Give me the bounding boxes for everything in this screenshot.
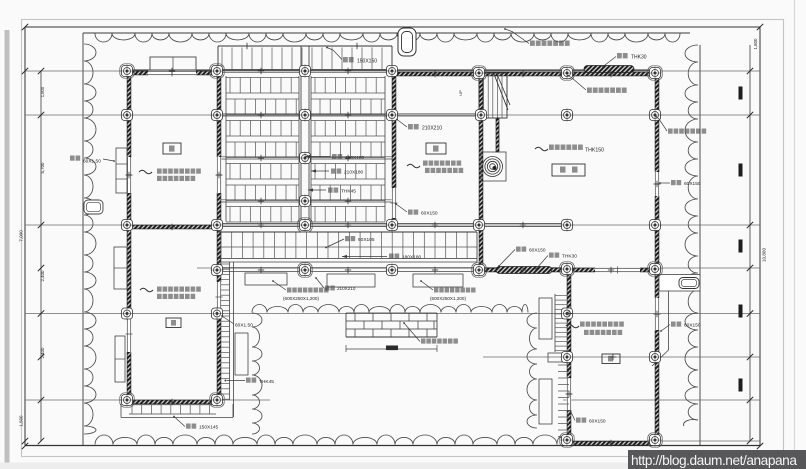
svg-text:180X180: 180X180 bbox=[345, 155, 365, 161]
svg-text:60X105: 60X105 bbox=[358, 237, 375, 243]
svg-text:http://blog.daum.net/anapana: http://blog.daum.net/anapana bbox=[631, 453, 797, 468]
svg-text:(600X250X1,200): (600X250X1,200) bbox=[430, 296, 466, 301]
svg-text:210X210: 210X210 bbox=[337, 286, 356, 291]
svg-text:60X150: 60X150 bbox=[589, 419, 606, 425]
svg-text:(600X250X1,200): (600X250X1,200) bbox=[283, 296, 319, 301]
svg-text:10,800: 10,800 bbox=[762, 248, 767, 262]
svg-text:60X1.50: 60X1.50 bbox=[83, 159, 101, 165]
svg-text:60X1.50: 60X1.50 bbox=[235, 323, 253, 329]
svg-text:THK45: THK45 bbox=[259, 379, 274, 385]
svg-text:2,400: 2,400 bbox=[40, 270, 45, 282]
svg-text:1,500: 1,500 bbox=[19, 415, 24, 427]
svg-text:210X210: 210X210 bbox=[422, 126, 442, 132]
svg-text:1,800: 1,800 bbox=[40, 86, 45, 97]
svg-text:210X180: 210X180 bbox=[344, 170, 364, 176]
svg-text:180X180: 180X180 bbox=[402, 255, 422, 261]
svg-text:THK45: THK45 bbox=[341, 189, 356, 195]
svg-text:THK150: THK150 bbox=[585, 148, 604, 154]
svg-text:2,400: 2,400 bbox=[40, 347, 45, 359]
svg-text:THK30: THK30 bbox=[562, 254, 577, 260]
svg-text:THK30: THK30 bbox=[631, 55, 647, 61]
svg-text:7,000: 7,000 bbox=[19, 230, 24, 242]
svg-text:1,800: 1,800 bbox=[753, 38, 758, 50]
svg-text:60X150: 60X150 bbox=[684, 181, 701, 187]
svg-text:60X150: 60X150 bbox=[529, 248, 546, 254]
svg-text:150X150: 150X150 bbox=[357, 59, 377, 65]
svg-text:60X150: 60X150 bbox=[684, 323, 701, 329]
svg-text:60X150: 60X150 bbox=[421, 211, 438, 217]
svg-text:150X145: 150X145 bbox=[199, 425, 219, 431]
svg-text:UP: UP bbox=[458, 90, 463, 96]
svg-text:5,700: 5,700 bbox=[40, 162, 45, 174]
